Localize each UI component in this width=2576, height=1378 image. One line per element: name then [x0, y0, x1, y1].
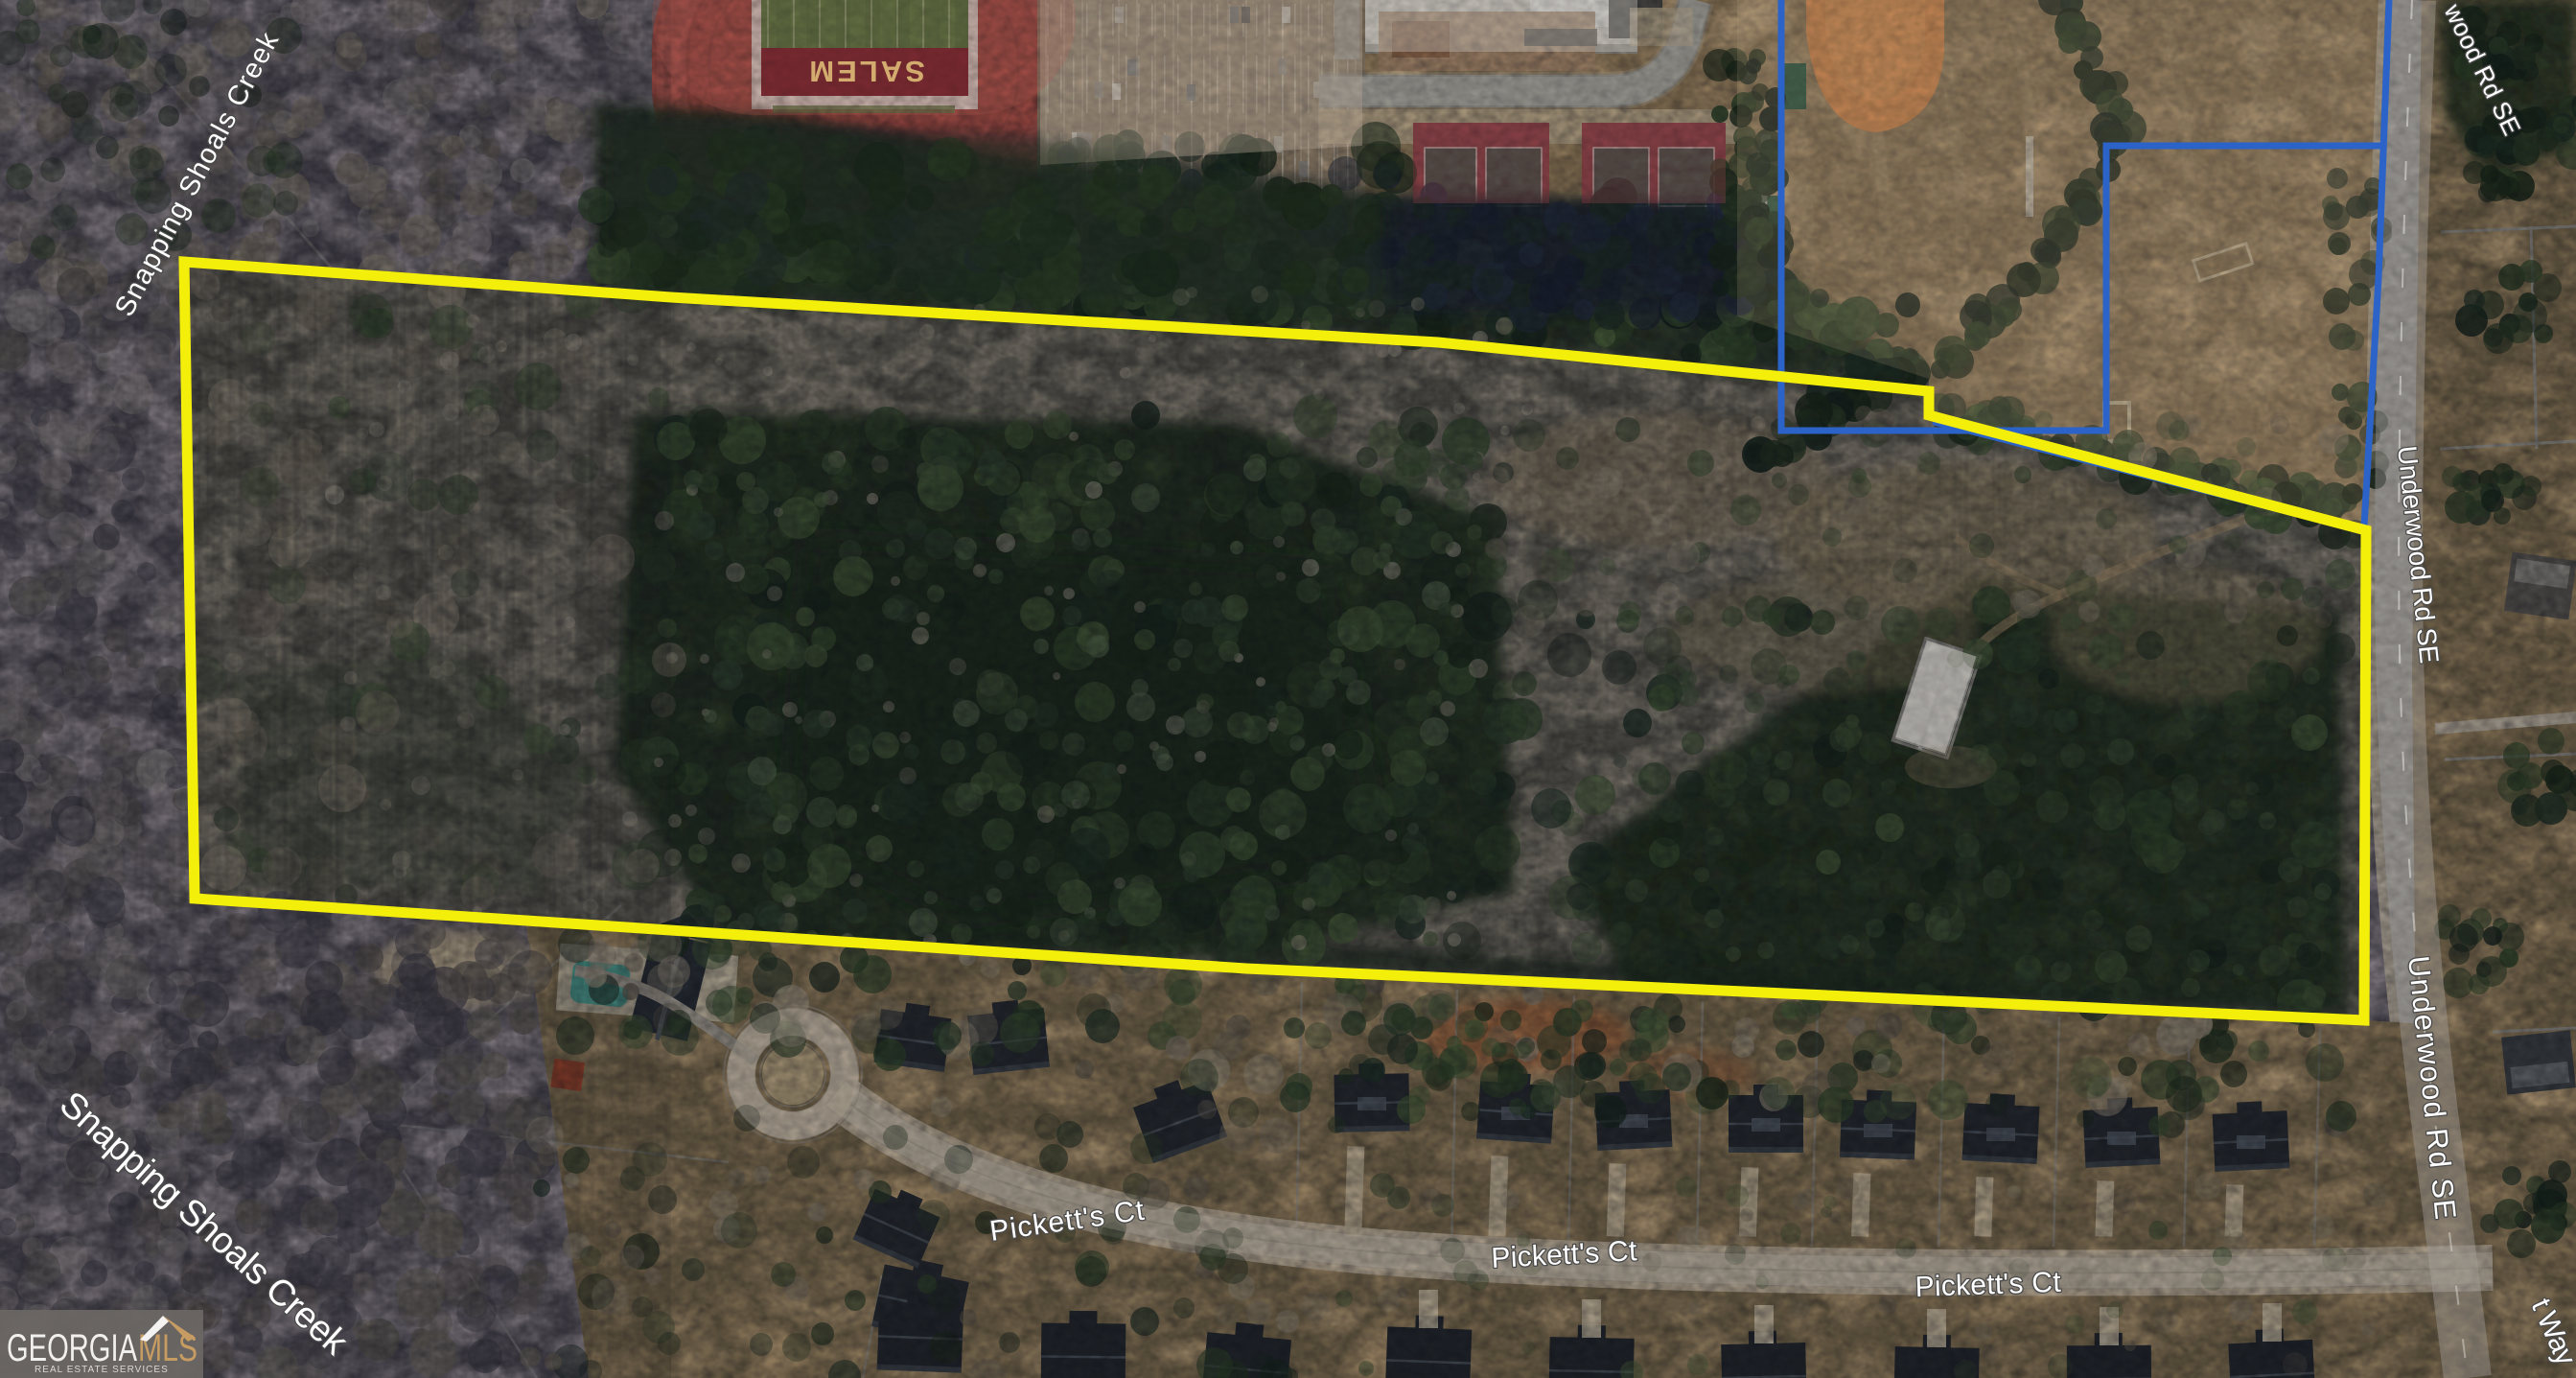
svg-text:REAL ESTATE SERVICES: REAL ESTATE SERVICES: [35, 1365, 171, 1375]
svg-text:GEORGIA: GEORGIA: [7, 1327, 137, 1369]
svg-text:SALEM: SALEM: [806, 55, 925, 88]
svg-text:Pickett's Ct: Pickett's Ct: [1915, 1267, 2062, 1303]
